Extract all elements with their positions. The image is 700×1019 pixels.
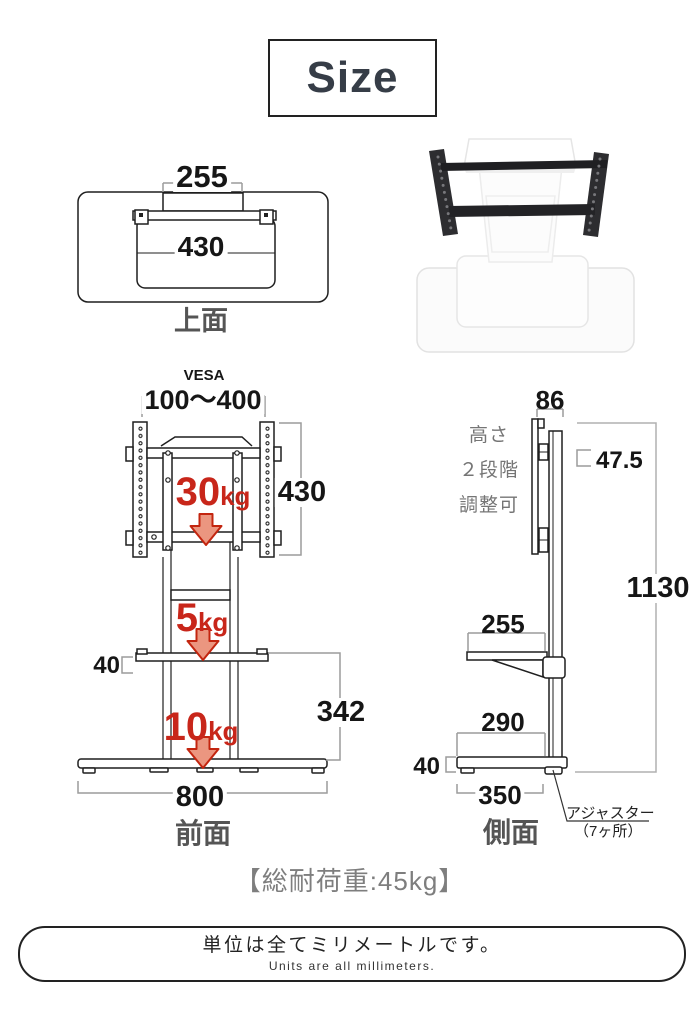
size-infographic: Size 255 430 上面 VESA 100～400 430 30kg 5k… [0,0,700,1019]
load-top-label: 30kg [176,472,251,512]
vesa-label: VESA [184,368,225,383]
height-adjust-note-line3: 調整可 [459,496,519,515]
size-title-box: Size [268,39,437,117]
rail-holes-right [263,425,272,556]
front-shelf-height-dim: 342 [314,698,368,727]
rail-holes-left [136,425,145,556]
side-top-depth-dim: 86 [536,387,565,413]
side-base-depth-dim: 350 [475,782,524,808]
side-base-thickness-dim: 40 [413,755,440,779]
vesa-height-dim: 430 [275,478,329,507]
page-title: Size [306,53,398,103]
total-height-dim: 1130 [624,574,693,603]
top-view-label: 上面 [174,308,228,335]
front-shelf-thickness-dim: 40 [93,654,120,678]
side-shelf-depth-dim: 255 [481,611,524,637]
product-photo [417,139,634,352]
side-view-label: 側面 [483,819,539,847]
height-adjust-note-line1: 高さ [469,426,509,445]
load-shelf-label: 5kg [176,598,229,638]
units-note-box: 単位は全てミリメートルです。 Units are all millimeters… [18,926,686,982]
top-view-column-width-dim: 255 [173,161,231,192]
units-note-jp: 単位は全てミリメートルです。 [202,935,501,958]
front-view-label: 前面 [175,820,231,848]
units-note-en: Units are all millimeters. [269,959,435,973]
front-base-width-dim: 800 [173,783,227,812]
total-load-note: 【総耐荷重:45kg】 [235,861,466,898]
adjuster-count-label: （7ヶ所） [574,824,642,839]
vesa-range-dim: 100～400 [141,387,264,414]
vesa-bar-bottom [449,204,595,217]
top-view-shelf-width-dim: 430 [175,233,228,261]
adjuster-label: アジャスター [566,806,655,821]
side-base-clear-depth-dim: 290 [481,709,524,735]
load-base-label: 10kg [164,707,239,747]
height-step-dim: 47.5 [596,449,643,473]
height-adjust-note-line2: ２段階 [459,461,519,480]
